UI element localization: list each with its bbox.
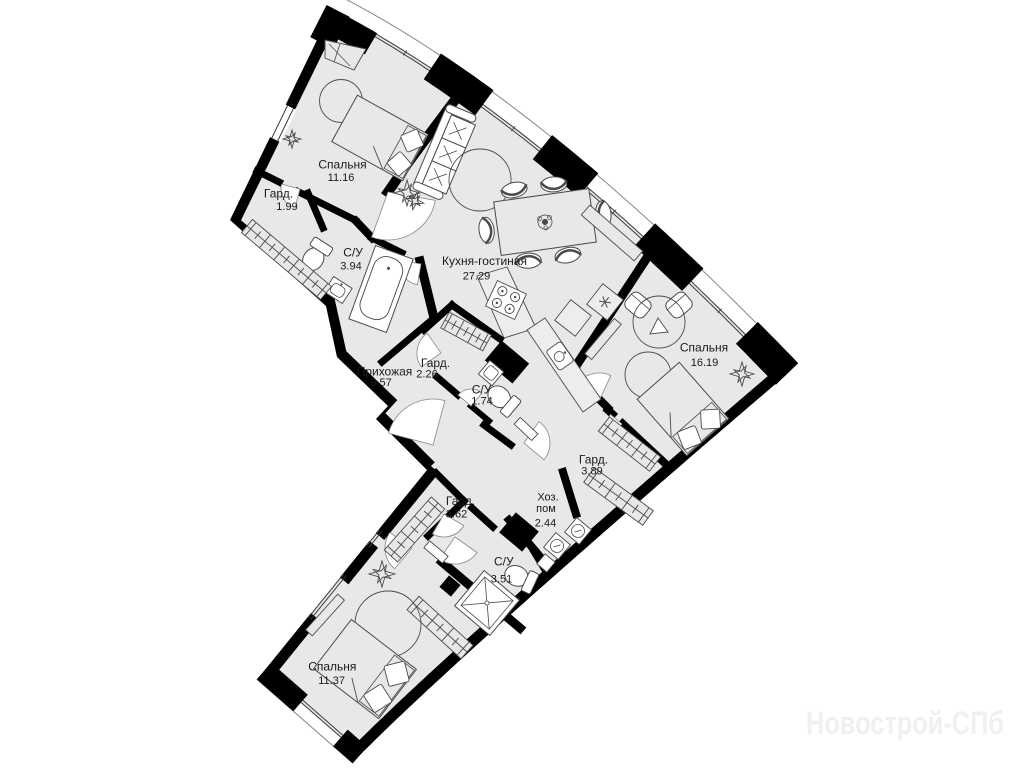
svg-text:16.19: 16.19 (691, 357, 719, 369)
svg-text:С/У: С/У (472, 383, 492, 397)
svg-text:Гард.: Гард. (579, 453, 608, 467)
svg-text:Спальня: Спальня (308, 660, 356, 674)
svg-text:Спальня: Спальня (318, 158, 366, 172)
svg-text:2.44: 2.44 (535, 518, 556, 530)
svg-text:пом: пом (536, 503, 556, 515)
svg-text:С/У: С/У (343, 246, 363, 260)
svg-text:11.37: 11.37 (318, 675, 345, 687)
svg-text:Хоз.: Хоз. (537, 492, 558, 504)
svg-text:3.89: 3.89 (581, 466, 602, 478)
svg-text:Новострой-СПб: Новострой-СПб (806, 705, 1004, 741)
svg-text:С/У: С/У (494, 555, 514, 569)
svg-text:1.74: 1.74 (471, 396, 492, 408)
svg-text:27.29: 27.29 (463, 271, 491, 283)
svg-text:11.16: 11.16 (328, 172, 355, 184)
svg-text:Кухня-гостиная: Кухня-гостиная (442, 254, 527, 268)
svg-text:3.51: 3.51 (491, 574, 512, 586)
svg-text:Спальня: Спальня (680, 341, 728, 355)
svg-text:3.94: 3.94 (340, 261, 361, 273)
svg-text:9.57: 9.57 (370, 377, 391, 389)
svg-text:Гард.: Гард. (446, 494, 475, 508)
svg-text:2.26: 2.26 (416, 369, 437, 381)
svg-text:1.99: 1.99 (276, 201, 297, 213)
svg-text:3.62: 3.62 (446, 509, 467, 521)
svg-text:Гард.: Гард. (264, 187, 293, 201)
